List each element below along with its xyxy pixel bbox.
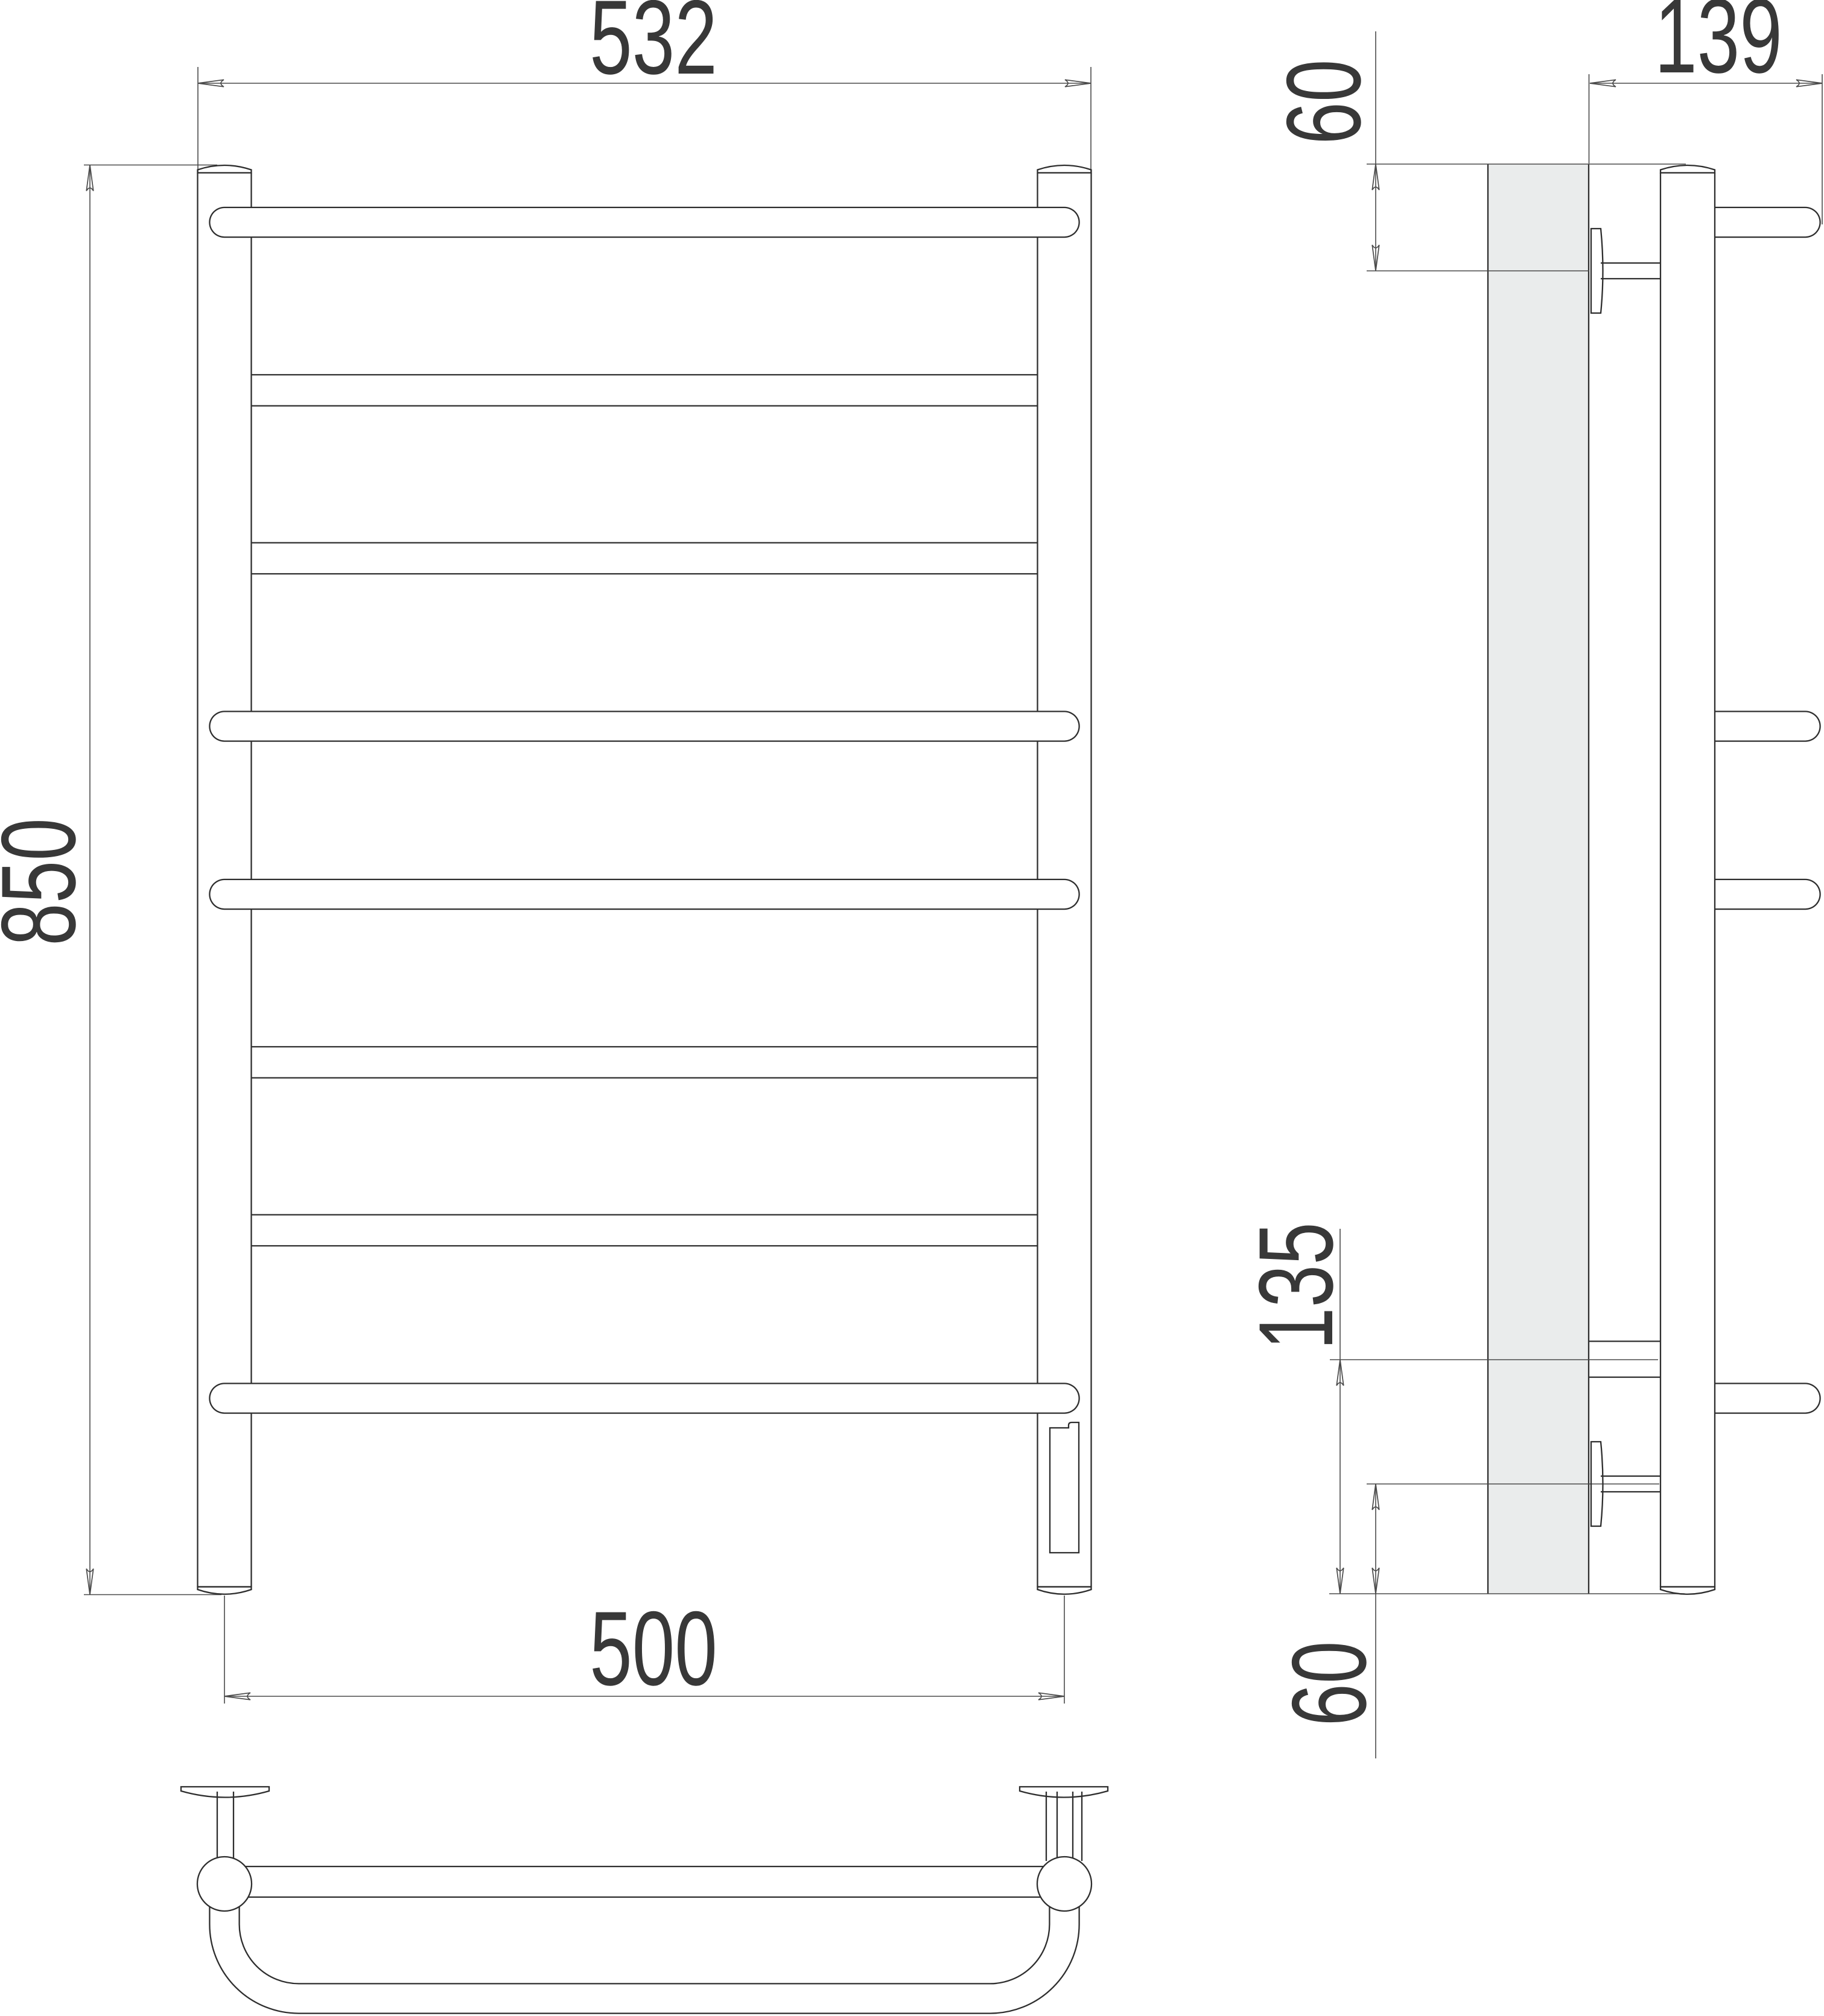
svg-text:135: 135 (1238, 1222, 1355, 1350)
svg-text:532: 532 (589, 0, 717, 97)
svg-text:139: 139 (1654, 0, 1782, 95)
svg-text:60: 60 (1271, 1641, 1388, 1726)
svg-text:850: 850 (0, 818, 98, 946)
svg-text:60: 60 (1265, 59, 1383, 144)
svg-text:500: 500 (589, 1590, 717, 1708)
